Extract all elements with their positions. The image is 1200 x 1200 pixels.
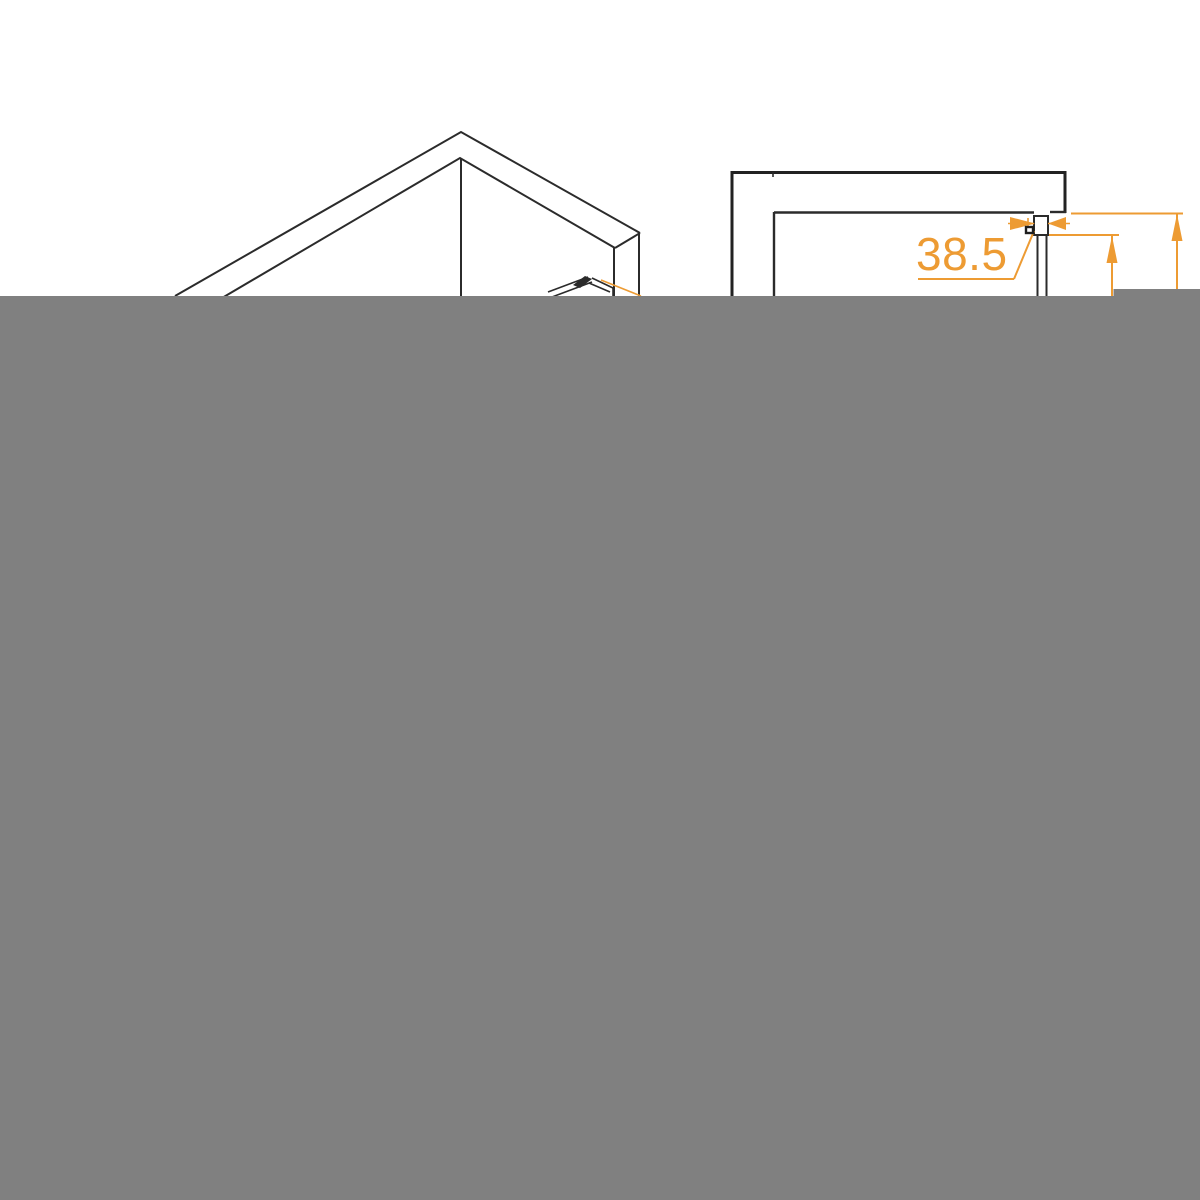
- screenshot-canvas: 38.5: [0, 0, 1200, 1200]
- dimension-annotations: 38.5: [916, 214, 1183, 301]
- height-arrow-inner: [1107, 236, 1118, 263]
- panel-outer-edge: [175, 132, 640, 296]
- glass-edge-line: [552, 282, 592, 297]
- gray-overlay-main: [0, 296, 1200, 1200]
- dimension-label: 38.5: [916, 228, 1008, 280]
- glass-hinge-detail: [548, 276, 641, 297]
- panel-corner-cap: [615, 233, 640, 248]
- panel-inner-edge: [222, 158, 615, 298]
- hinge-leader-line: [601, 280, 641, 296]
- dimension-leader-line: [1014, 231, 1034, 279]
- gray-overlay: [0, 289, 1200, 1200]
- glass-clip: [1026, 227, 1033, 233]
- height-arrow-outer: [1172, 214, 1183, 241]
- gray-overlay-step: [1114, 289, 1200, 297]
- width-arrow-right: [1048, 217, 1066, 230]
- door-profile-head: [1034, 216, 1048, 235]
- door-profile-body: [1038, 235, 1047, 298]
- section-view: [731, 171, 1067, 298]
- technical-drawing: 38.5: [0, 0, 1200, 1200]
- isometric-view: [175, 132, 641, 298]
